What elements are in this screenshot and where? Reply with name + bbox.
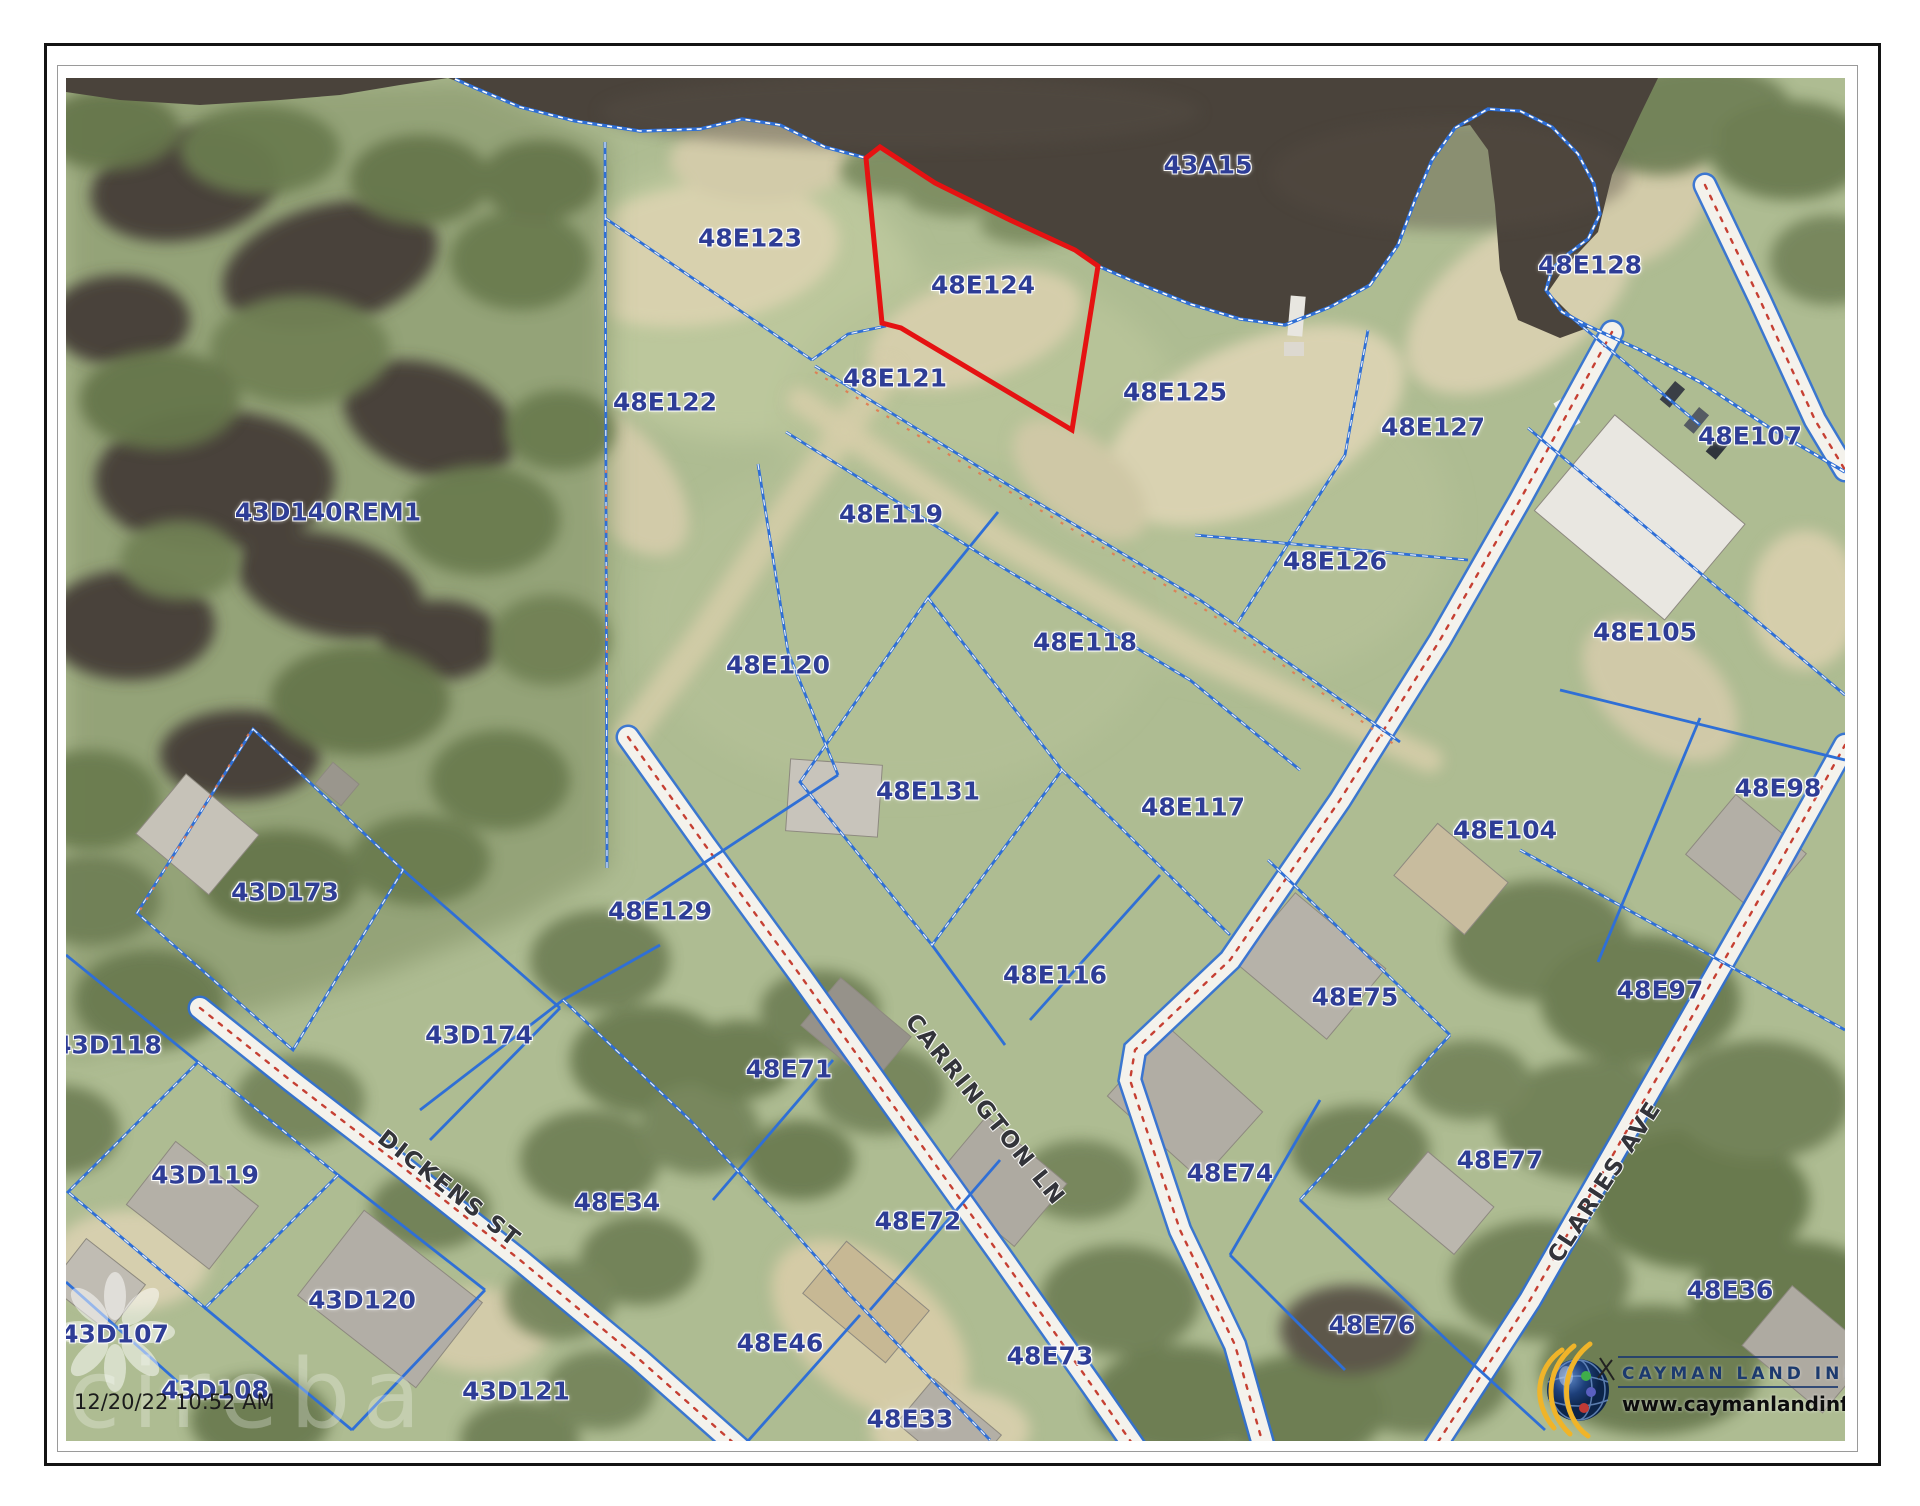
parcel-label-48E105: 48E105 [1593, 618, 1697, 647]
parcel-label-43D107: 43D107 [66, 1320, 169, 1349]
map-canvas[interactable]: cireba 43A1548E12348E12448E12848E12248E1… [66, 78, 1845, 1441]
parcel-label-48E118: 48E118 [1033, 628, 1137, 657]
parcel-label-48E127: 48E127 [1381, 413, 1485, 442]
parcel-label-48E129: 48E129 [608, 897, 712, 926]
parcel-label-48E131: 48E131 [876, 777, 980, 806]
parcel-label-48E107: 48E107 [1698, 422, 1802, 451]
parcel-label-48E120: 48E120 [726, 651, 830, 680]
parcel-label-43D174: 43D174 [425, 1021, 533, 1050]
parcel-label-48E125: 48E125 [1123, 378, 1227, 407]
parcel-label-48E104: 48E104 [1453, 816, 1557, 845]
globe-icon [1534, 1340, 1620, 1440]
parcel-label-48E33: 48E33 [867, 1405, 954, 1434]
parcel-label-48E98: 48E98 [1735, 774, 1822, 803]
page: cireba 43A1548E12348E12448E12848E12248E1… [0, 0, 1920, 1506]
parcel-label-48E34: 48E34 [574, 1188, 661, 1217]
parcel-label-48E123: 48E123 [698, 224, 802, 253]
logo-rule-top [1618, 1356, 1838, 1358]
parcel-label-48E75: 48E75 [1312, 983, 1399, 1012]
parcel-label-43D120: 43D120 [308, 1286, 416, 1315]
parcel-label-43D119: 43D119 [151, 1161, 259, 1190]
parcel-label-43D118: 43D118 [66, 1031, 162, 1060]
parcel-label-48E128: 48E128 [1538, 251, 1642, 280]
logo-title: CAYMAN LAND INFO [1622, 1364, 1834, 1384]
logo-website[interactable]: www.caymanlandinfo.ky [1622, 1392, 1834, 1416]
parcel-label-48E73: 48E73 [1007, 1342, 1094, 1371]
parcel-label-48E46: 48E46 [737, 1329, 824, 1358]
parcel-label-43D140REM1: 43D140REM1 [235, 498, 421, 527]
parcel-label-48E36: 48E36 [1687, 1276, 1774, 1305]
parcel-label-48E74: 48E74 [1187, 1159, 1274, 1188]
cayman-land-info-logo: CAYMAN LAND INFO www.caymanlandinfo.ky [1534, 1340, 1839, 1440]
logo-rule-bottom [1618, 1386, 1838, 1388]
parcel-label-48E126: 48E126 [1283, 547, 1387, 576]
parcel-label-43D121: 43D121 [462, 1377, 570, 1406]
parcel-label-48E122: 48E122 [613, 388, 717, 417]
parcel-label-48E119: 48E119 [839, 500, 943, 529]
parcel-label-48E117: 48E117 [1141, 793, 1245, 822]
parcel-label-48E76: 48E76 [1329, 1311, 1416, 1340]
timestamp: 12/20/22 10:52 AM [74, 1390, 275, 1414]
parcel-label-43D173: 43D173 [231, 878, 339, 907]
parcel-label-48E121: 48E121 [843, 364, 947, 393]
parcel-label-48E124: 48E124 [931, 271, 1035, 300]
parcel-label-43A15: 43A15 [1164, 151, 1253, 180]
parcel-label-48E77: 48E77 [1457, 1146, 1544, 1175]
parcel-label-48E116: 48E116 [1003, 961, 1107, 990]
parcel-label-48E72: 48E72 [875, 1207, 962, 1236]
parcel-label-48E97: 48E97 [1617, 976, 1704, 1005]
parcel-label-48E71: 48E71 [746, 1055, 833, 1084]
